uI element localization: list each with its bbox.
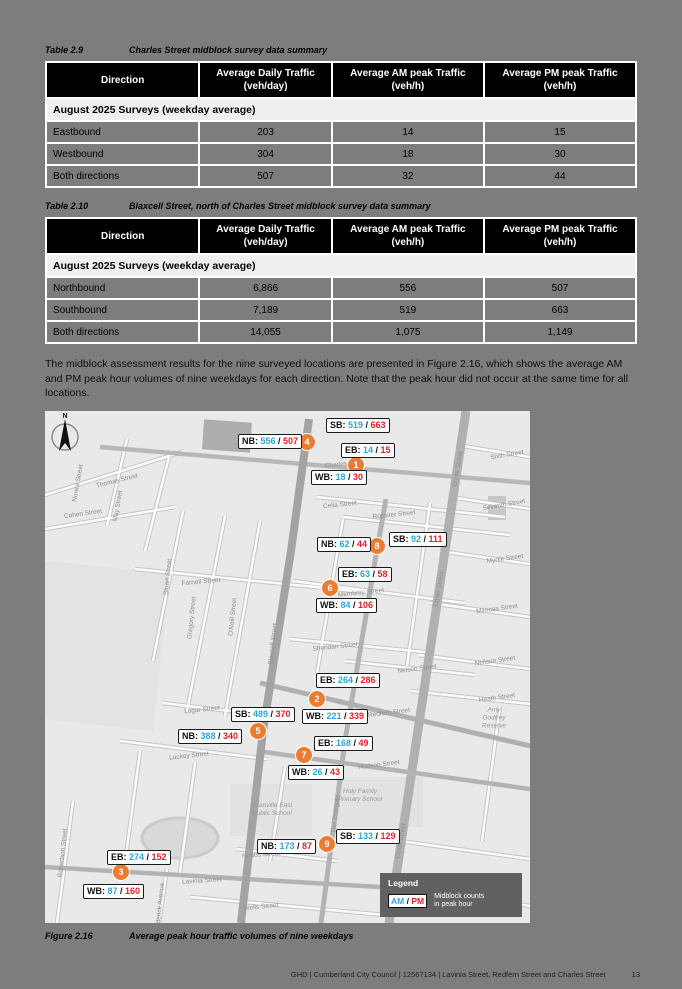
value-cell: 507 [199,165,331,187]
direction-cell: Northbound [46,277,199,299]
table-row: Both directions14,0551,0751,149 [46,321,636,343]
pm-count: 30 [353,472,363,482]
am-count: 133 [358,831,373,841]
footer-text: GHD | Cumberland City Council | 12567134… [291,970,606,979]
count-separator: / [363,420,371,430]
count-separator: / [353,675,361,685]
table-caption-label: Table 2.9 [45,45,129,55]
count-separator: / [276,436,284,446]
pm-count: 286 [361,675,376,685]
table-subheader: August 2025 Surveys (weekday average) [46,98,636,121]
legend-title: Legend [388,878,514,888]
value-cell: 32 [332,165,484,187]
traffic-count-label: NB: 62 / 44 [317,537,371,552]
table-caption: Table 2.10 Blaxcell Street, north of Cha… [45,201,637,211]
count-separator: / [351,600,359,610]
traffic-count-label: WB: 221 / 339 [302,709,368,724]
am-count: 489 [253,709,268,719]
traffic-count-label: WB: 87 / 160 [83,884,144,899]
value-cell: 663 [484,299,636,321]
am-pm-chip: AM / PM [388,894,427,908]
column-header: Average AM peak Traffic (veh/h) [332,62,484,98]
north-label: N [62,413,67,420]
traffic-count-label: SB: 92 / 111 [389,532,447,547]
direction-prefix: WB: [292,767,313,777]
survey-locations-map: N Thomas StreetNowra StreetMay StreetCoh… [45,411,530,923]
column-header: Direction [46,62,199,98]
column-header: Average PM peak Traffic (veh/h) [484,218,636,254]
pm-count: 15 [381,445,391,455]
traffic-count-label: EB: 168 / 49 [314,736,373,751]
table-caption-text: Charles Street midblock survey data summ… [129,45,327,55]
am-count: 388 [201,731,216,741]
pm-count: 87 [302,841,312,851]
am-count: 14 [363,445,373,455]
value-cell: 203 [199,121,331,143]
place-label: Granville East Public School [252,802,292,818]
am-count: 63 [360,569,370,579]
count-separator: / [373,445,381,455]
value-cell: 304 [199,143,331,165]
pm-count: 111 [429,534,443,544]
location-marker: 3 [112,863,130,881]
location-marker: 5 [249,722,267,740]
am-count: 26 [313,767,323,777]
count-separator: / [350,539,358,549]
direction-prefix: EB: [320,675,338,685]
pm-count: 129 [381,831,396,841]
direction-prefix: NB: [261,841,280,851]
am-count: 87 [108,886,118,896]
direction-prefix: EB: [345,445,363,455]
count-separator: / [216,731,224,741]
direction-prefix: SB: [340,831,358,841]
direction-cell: Both directions [46,321,199,343]
value-cell: 556 [332,277,484,299]
place-label: Holy Family Primary School [338,788,382,804]
pm-count: 663 [371,420,386,430]
pm-count: 43 [330,767,340,777]
am-count: 18 [336,472,346,482]
legend-description: Midblock counts in peak hour [434,893,484,911]
traffic-count-label: EB: 63 / 58 [338,567,392,582]
body-paragraph: The midblock assessment results for the … [45,357,637,401]
direction-prefix: WB: [306,711,327,721]
direction-prefix: EB: [111,852,129,862]
value-cell: 15 [484,121,636,143]
count-separator: / [370,569,378,579]
count-separator: / [373,831,381,841]
count-separator: / [421,534,429,544]
count-separator: / [342,711,350,721]
count-separator: / [346,472,354,482]
table-caption-label: Table 2.10 [45,201,129,211]
direction-prefix: WB: [87,886,108,896]
am-count: 84 [341,600,351,610]
count-separator: / [323,767,331,777]
count-separator: / [295,841,303,851]
pm-count: 339 [349,711,364,721]
value-cell: 30 [484,143,636,165]
traffic-count-label: SB: 133 / 129 [336,829,400,844]
legend-am-label: AM [391,896,404,906]
figure-caption-text: Average peak hour traffic volumes of nin… [129,931,353,941]
location-marker: 7 [295,746,313,764]
direction-prefix: NB: [182,731,201,741]
location-marker: 2 [308,690,326,708]
am-count: 173 [280,841,295,851]
column-header: Average PM peak Traffic (veh/h) [484,62,636,98]
map-legend: Legend AM / PM Midblock counts in peak h… [380,873,522,918]
location-marker: 6 [321,579,339,597]
direction-prefix: WB: [320,600,341,610]
table-header-row: DirectionAverage Daily Traffic (veh/day)… [46,218,636,254]
location-marker: 9 [318,835,336,853]
traffic-count-label: EB: 264 / 286 [316,673,380,688]
table-caption: Table 2.9 Charles Street midblock survey… [45,45,637,55]
direction-prefix: SB: [330,420,348,430]
count-separator: / [351,738,359,748]
report-page: Table 2.9 Charles Street midblock survey… [0,0,682,989]
direction-cell: Eastbound [46,121,199,143]
traffic-count-label: EB: 14 / 15 [341,443,395,458]
traffic-count-label: SB: 489 / 370 [231,707,295,722]
table-header-row: DirectionAverage Daily Traffic (veh/day)… [46,62,636,98]
charles-street-table: DirectionAverage Daily Traffic (veh/day)… [45,61,637,188]
table-row: Northbound6,866556507 [46,277,636,299]
figure-caption: Figure 2.16 Average peak hour traffic vo… [45,931,637,941]
pm-count: 106 [358,600,373,610]
value-cell: 18 [332,143,484,165]
page-footer: GHD | Cumberland City Council | 12567134… [45,970,640,979]
traffic-count-label: NB: 173 / 87 [257,839,316,854]
value-cell: 1,149 [484,321,636,343]
blaxcell-street-table: DirectionAverage Daily Traffic (veh/day)… [45,217,637,344]
pm-count: 370 [276,709,291,719]
am-count: 264 [338,675,353,685]
direction-cell: Southbound [46,299,199,321]
direction-prefix: NB: [242,436,261,446]
traffic-count-label: NB: 388 / 340 [178,729,242,744]
pm-count: 58 [378,569,388,579]
table-row: Westbound3041830 [46,143,636,165]
value-cell: 14,055 [199,321,331,343]
column-header: Direction [46,218,199,254]
page-number: 13 [632,970,640,979]
direction-prefix: NB: [321,539,340,549]
pm-count: 152 [152,852,167,862]
pm-count: 507 [283,436,298,446]
column-header: Average Daily Traffic (veh/day) [199,62,331,98]
am-count: 168 [336,738,351,748]
direction-prefix: SB: [235,709,253,719]
table-row: Eastbound2031415 [46,121,636,143]
table-row: Southbound7,189519663 [46,299,636,321]
count-separator: / [268,709,276,719]
pm-count: 160 [125,886,140,896]
direction-cell: Both directions [46,165,199,187]
figure-caption-label: Figure 2.16 [45,931,129,941]
traffic-count-label: WB: 84 / 106 [316,598,377,613]
am-count: 62 [340,539,350,549]
value-cell: 14 [332,121,484,143]
count-separator: / [118,886,126,896]
traffic-count-label: SB: 519 / 663 [326,418,390,433]
am-count: 274 [129,852,144,862]
am-count: 556 [261,436,276,446]
count-separator: / [144,852,152,862]
place-label: Amy Godfrey Reserve [476,706,512,729]
value-cell: 6,866 [199,277,331,299]
direction-prefix: EB: [342,569,360,579]
table-caption-text: Blaxcell Street, north of Charles Street… [129,201,431,211]
column-header: Average Daily Traffic (veh/day) [199,218,331,254]
direction-prefix: WB: [315,472,336,482]
value-cell: 7,189 [199,299,331,321]
direction-prefix: SB: [393,534,411,544]
pm-count: 44 [357,539,367,549]
am-count: 92 [411,534,421,544]
value-cell: 507 [484,277,636,299]
traffic-count-label: NB: 556 / 507 [238,434,302,449]
value-cell: 519 [332,299,484,321]
column-header: Average AM peak Traffic (veh/h) [332,218,484,254]
am-count: 519 [348,420,363,430]
legend-pm-label: PM [411,896,424,906]
value-cell: 1,075 [332,321,484,343]
pm-count: 340 [223,731,238,741]
pm-count: 49 [359,738,369,748]
table-row: Both directions5073244 [46,165,636,187]
table-subheader: August 2025 Surveys (weekday average) [46,254,636,277]
direction-cell: Westbound [46,143,199,165]
north-arrow-icon: N [45,411,85,455]
traffic-count-label: EB: 274 / 152 [107,850,171,865]
am-count: 221 [327,711,342,721]
direction-prefix: EB: [318,738,336,748]
traffic-count-label: WB: 26 / 43 [288,765,344,780]
traffic-count-label: WB: 18 / 30 [311,470,367,485]
value-cell: 44 [484,165,636,187]
